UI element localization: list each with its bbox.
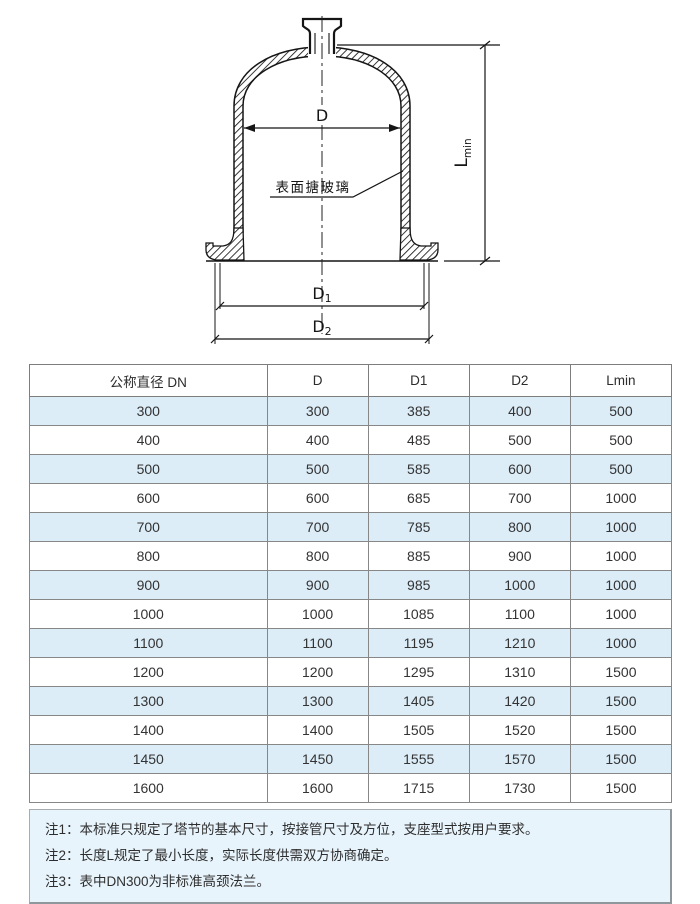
table-cell: 900 [469, 542, 570, 571]
col-header-d2: D2 [469, 365, 570, 397]
table-cell: 1085 [368, 600, 469, 629]
table-cell: 1000 [267, 600, 368, 629]
note-line-1: 注1：本标准只规定了塔节的基本尺寸，按接管尺寸及方位，支座型式按用户要求。 [45, 817, 660, 843]
table-cell: 1195 [368, 629, 469, 658]
table-cell: 1200 [267, 658, 368, 687]
table-cell: 1210 [469, 629, 570, 658]
table-cell: 500 [30, 455, 268, 484]
table-cell: 600 [469, 455, 570, 484]
table-cell: 700 [469, 484, 570, 513]
table-row: 14001400150515201500 [30, 716, 672, 745]
table-cell: 700 [30, 513, 268, 542]
table-row: 7007007858001000 [30, 513, 672, 542]
table-cell: 500 [570, 426, 671, 455]
table-cell: 800 [469, 513, 570, 542]
table-cell: 1200 [30, 658, 268, 687]
table-cell: 1730 [469, 774, 570, 803]
table-cell: 400 [469, 397, 570, 426]
dimensions-table: 公称直径 DN D D1 D2 Lmin 3003003854005004004… [29, 364, 672, 803]
dim-arrow-d-left [244, 124, 255, 132]
table-cell: 900 [30, 571, 268, 600]
table-cell: 685 [368, 484, 469, 513]
col-header-d1: D1 [368, 365, 469, 397]
table-cell: 700 [267, 513, 368, 542]
table-cell: 400 [30, 426, 268, 455]
table-row: 16001600171517301500 [30, 774, 672, 803]
table-cell: 1500 [570, 716, 671, 745]
table-cell: 1400 [30, 716, 268, 745]
table-row: 13001300140514201500 [30, 687, 672, 716]
table-row: 14501450155515701500 [30, 745, 672, 774]
table-cell: 500 [469, 426, 570, 455]
table-cell: 1500 [570, 658, 671, 687]
flange-left [206, 228, 244, 260]
table-cell: 800 [30, 542, 268, 571]
table-cell: 1715 [368, 774, 469, 803]
dim-label-lmin: Lmin [452, 138, 474, 167]
table-header: 公称直径 DN D D1 D2 Lmin [30, 365, 672, 397]
table-cell: 1100 [469, 600, 570, 629]
table-cell: 1405 [368, 687, 469, 716]
table-cell: 900 [267, 571, 368, 600]
table-cell: 500 [570, 455, 671, 484]
table-cell: 1000 [30, 600, 268, 629]
table-cell: 585 [368, 455, 469, 484]
table-cell: 1000 [469, 571, 570, 600]
table-cell: 885 [368, 542, 469, 571]
dim-arrow-d-right [389, 124, 400, 132]
table-cell: 1000 [570, 513, 671, 542]
table-cell: 1520 [469, 716, 570, 745]
dim-label-d1: D1 [312, 284, 331, 305]
flange-right [400, 228, 438, 260]
table-cell: 985 [368, 571, 469, 600]
table-cell: 1100 [30, 629, 268, 658]
table-cell: 1300 [267, 687, 368, 716]
table-cell: 1600 [30, 774, 268, 803]
table-cell: 500 [267, 455, 368, 484]
table-body: 3003003854005004004004855005005005005856… [30, 397, 672, 803]
table-cell: 1000 [570, 600, 671, 629]
table-cell: 385 [368, 397, 469, 426]
note-line-3: 注3：表中DN300为非标准高颈法兰。 [45, 869, 660, 895]
table-row: 10001000108511001000 [30, 600, 672, 629]
table-row: 6006006857001000 [30, 484, 672, 513]
table-row: 90090098510001000 [30, 571, 672, 600]
table-cell: 800 [267, 542, 368, 571]
tower-section-drawing: D 表面搪玻璃 D1 D2 Lmin [0, 0, 700, 360]
surface-enamel-label: 表面搪玻璃 [276, 179, 351, 196]
table-cell: 485 [368, 426, 469, 455]
table-row: 300300385400500 [30, 397, 672, 426]
col-header-d: D [267, 365, 368, 397]
table-cell: 1600 [267, 774, 368, 803]
table-cell: 1505 [368, 716, 469, 745]
table-cell: 1300 [30, 687, 268, 716]
table-cell: 1450 [30, 745, 268, 774]
table-row: 8008008859001000 [30, 542, 672, 571]
table-cell: 1000 [570, 542, 671, 571]
table-cell: 1500 [570, 745, 671, 774]
table-row: 12001200129513101500 [30, 658, 672, 687]
dim-label-d: D [316, 106, 328, 125]
table-cell: 1500 [570, 774, 671, 803]
table-cell: 1310 [469, 658, 570, 687]
table-row: 400400485500500 [30, 426, 672, 455]
table-cell: 600 [30, 484, 268, 513]
table-cell: 1500 [570, 687, 671, 716]
table-cell: 500 [570, 397, 671, 426]
table-cell: 1295 [368, 658, 469, 687]
table-cell: 1570 [469, 745, 570, 774]
dim-label-d2: D2 [312, 317, 331, 338]
table-cell: 1100 [267, 629, 368, 658]
table-cell: 600 [267, 484, 368, 513]
table-cell: 785 [368, 513, 469, 542]
table-row: 500500585600500 [30, 455, 672, 484]
table-cell: 1000 [570, 484, 671, 513]
tower-section-diagram: D 表面搪玻璃 D1 D2 Lmin [0, 0, 700, 360]
table-header-row: 公称直径 DN D D1 D2 Lmin [30, 365, 672, 397]
table-cell: 1420 [469, 687, 570, 716]
table-cell: 1400 [267, 716, 368, 745]
col-header-dn: 公称直径 DN [30, 365, 268, 397]
table-cell: 1450 [267, 745, 368, 774]
table-cell: 300 [267, 397, 368, 426]
table-cell: 400 [267, 426, 368, 455]
table-cell: 1555 [368, 745, 469, 774]
table-cell: 1000 [570, 571, 671, 600]
note-line-2: 注2：长度L规定了最小长度，实际长度供需双方协商确定。 [45, 843, 660, 869]
table-row: 11001100119512101000 [30, 629, 672, 658]
col-header-lmin: Lmin [570, 365, 671, 397]
table-cell: 300 [30, 397, 268, 426]
table-cell: 1000 [570, 629, 671, 658]
